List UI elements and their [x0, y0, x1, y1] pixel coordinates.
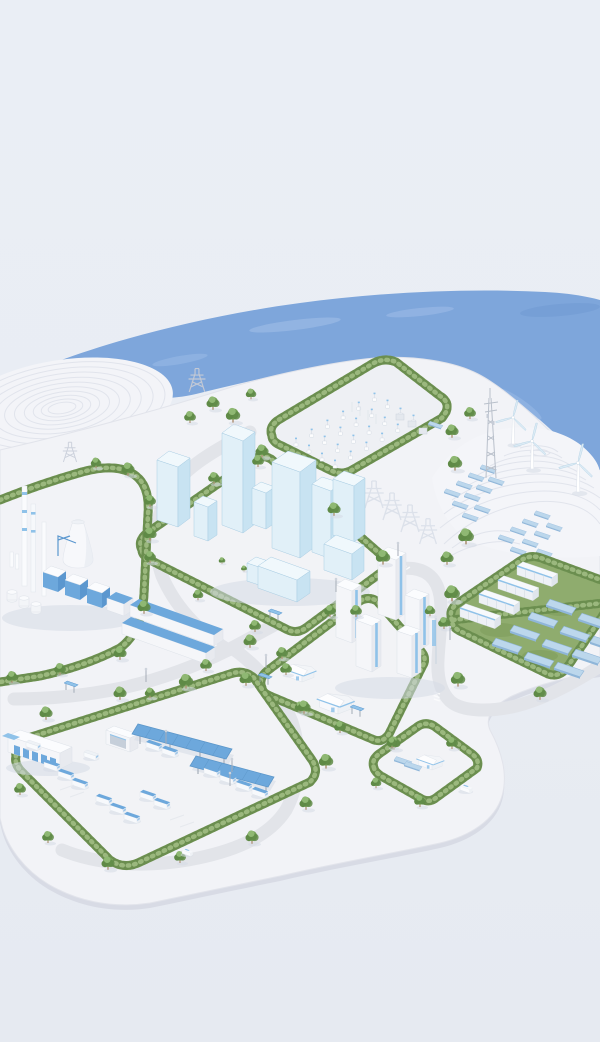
isometric-city-illustration: [0, 0, 600, 1042]
apartment-tower: [356, 614, 381, 672]
transformer-box: [408, 421, 416, 427]
glass-tower: [157, 451, 190, 527]
apartment-tower: [397, 625, 421, 678]
factory-hall: [43, 566, 66, 592]
transformer-box: [396, 414, 404, 420]
factory-hall: [87, 582, 110, 608]
chimney: [31, 504, 36, 592]
chimney: [22, 486, 27, 586]
glass-tower: [272, 451, 316, 558]
glass-tower: [252, 482, 275, 529]
glass-tower: [222, 424, 255, 533]
factory-hall: [65, 574, 88, 600]
transformer-box: [419, 428, 427, 434]
glass-tower: [194, 496, 217, 541]
